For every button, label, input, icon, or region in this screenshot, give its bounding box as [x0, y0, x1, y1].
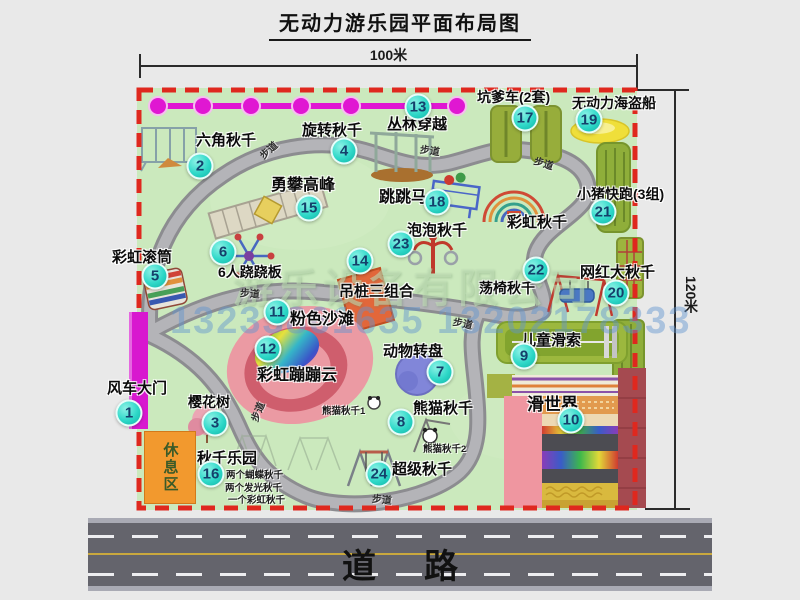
attraction-badge-kids-zipline: 9	[511, 343, 538, 370]
path-label-3: 步道	[240, 284, 261, 300]
note-swing-note-3: 一个彩虹秋千	[228, 492, 285, 506]
path-label-1: 步道	[419, 141, 441, 159]
playground-plan-poster: 无动力游乐园平面布局图 100米 120米	[0, 0, 800, 600]
attraction-badge-jump-horse: 18	[424, 189, 451, 216]
attraction-badge-pink-beach: 11	[264, 299, 291, 326]
rest-area: 休息区	[144, 431, 196, 504]
attraction-label-hex-swing: 六角秋千	[196, 133, 256, 150]
attraction-badge-pit-car: 17	[512, 105, 539, 132]
attraction-badge-hex-swing: 2	[187, 153, 214, 180]
attraction-badge-rotating-swing: 4	[331, 138, 358, 165]
attraction-label-rainbow-swing: 彩虹秋千	[507, 215, 567, 232]
attraction-label-piggy-run: 小猪快跑(3组)	[577, 187, 664, 202]
attraction-badge-piggy-run: 21	[590, 199, 617, 226]
road-lane-line	[88, 535, 712, 538]
attraction-label-animal-carousel: 动物转盘	[383, 344, 443, 361]
rest-area-label: 休息区	[160, 442, 181, 493]
attraction-label-climb-peak: 勇攀高峰	[271, 177, 335, 195]
road: 道路	[88, 518, 712, 591]
attraction-badge-super-swing: 24	[366, 461, 393, 488]
attraction-badge-jungle-crossing: 13	[405, 94, 432, 121]
note-swing-note-1: 两个蝴蝶秋千	[226, 467, 283, 481]
road-label: 道路	[88, 539, 712, 588]
attraction-label-pink-beach: 粉色沙滩	[290, 311, 354, 329]
attraction-badge-rainbow-roller: 5	[142, 263, 169, 290]
attraction-label-rainbow-roller: 彩虹滚筒	[112, 250, 172, 267]
attraction-badge-climb-peak: 15	[296, 195, 323, 222]
attraction-label-windmill-gate: 风车大门	[107, 381, 167, 398]
attraction-label-panda-swing: 熊猫秋千	[413, 401, 473, 418]
attraction-badge-cherry-tree: 3	[202, 410, 229, 437]
attraction-label-chair-swing: 荡椅秋千	[479, 281, 535, 296]
attraction-label-rainbow-cloud: 彩虹蹦蹦云	[257, 367, 337, 385]
note-panda-note-1: 熊猫秋千1	[322, 403, 365, 417]
path-label-6: 步道	[371, 490, 392, 507]
attraction-badge-big-swing: 20	[603, 280, 630, 307]
attraction-badge-chair-swing: 22	[523, 257, 550, 284]
attraction-badge-pirate-ship: 19	[576, 107, 603, 134]
attraction-label-pit-car: 坑爹车(2套)	[477, 90, 550, 105]
attraction-badge-windmill-gate: 1	[116, 400, 143, 427]
watermark-phone: 13233861635 13202178333	[170, 300, 692, 343]
attraction-badge-six-seesaw: 6	[210, 239, 237, 266]
attraction-badge-bubble-swing: 23	[388, 231, 415, 258]
road-label-text: 道路	[342, 539, 506, 588]
attraction-badge-slide-world: 10	[558, 407, 585, 434]
attraction-label-six-seesaw: 6人跷跷板	[218, 265, 282, 280]
attraction-label-cherry-tree: 樱花树	[188, 395, 230, 410]
attraction-label-rotating-swing: 旋转秋千	[302, 123, 362, 140]
attraction-badge-swing-park: 16	[198, 461, 225, 488]
attraction-badge-rainbow-cloud: 12	[255, 336, 282, 363]
attraction-label-hanging-piles: 吊桩三组合	[339, 284, 414, 301]
attraction-badge-hanging-piles: 14	[347, 248, 374, 275]
slide-world-icon	[487, 368, 646, 508]
attraction-label-bubble-swing: 泡泡秋千	[407, 223, 467, 240]
attraction-label-jump-horse: 跳跳马	[379, 189, 427, 207]
note-panda-note-2: 熊猫秋千2	[423, 441, 466, 455]
attraction-badge-animal-carousel: 7	[427, 359, 454, 386]
attraction-label-super-swing: 超级秋千	[392, 462, 452, 479]
attraction-badge-panda-swing: 8	[388, 409, 415, 436]
